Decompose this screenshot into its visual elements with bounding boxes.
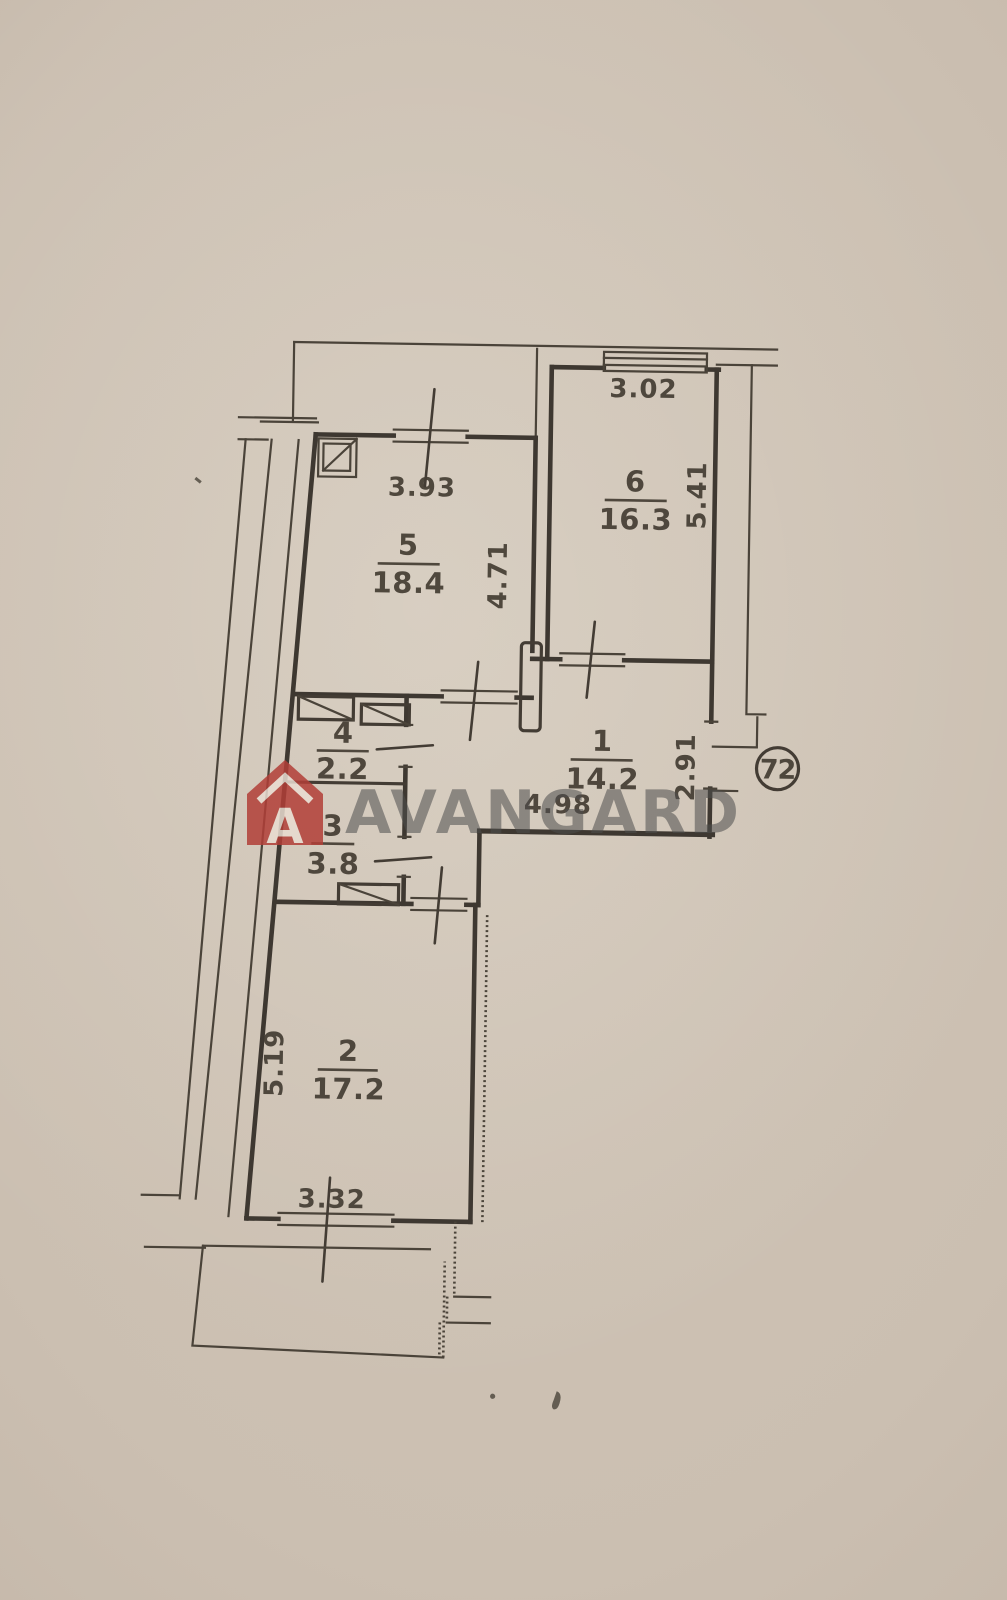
door-leaf-block — [520, 643, 541, 731]
room-3-number: 3 — [322, 809, 343, 843]
dimension-room-2-width: 3.32 — [297, 1184, 366, 1215]
corner-duct-room-5 — [318, 438, 357, 477]
room-5-number: 5 — [398, 528, 419, 562]
door-room-5 — [442, 690, 517, 703]
floor-plan-photo: 6 16.3 5 18.4 4 2.2 3 3.8 1 — [0, 0, 1007, 1600]
watermark-text: AVANGARD — [345, 778, 742, 848]
balcony-top-outline — [261, 342, 537, 438]
room-5-area: 18.4 — [371, 565, 445, 600]
window-room-6 — [604, 352, 707, 373]
room-4-label: 4 2.2 — [316, 715, 370, 786]
plan-lines: 6 16.3 5 18.4 4 2.2 3 3.8 1 — [138, 340, 805, 1413]
room-6-label: 6 16.3 — [598, 464, 673, 537]
room-3-area: 3.8 — [306, 846, 359, 881]
dimension-room-2-depth: 5.19 — [259, 1029, 290, 1098]
apartment-number-badge: 72 — [756, 747, 799, 790]
floor-plan-drawing: 6 16.3 5 18.4 4 2.2 3 3.8 1 — [0, 0, 1007, 1600]
room-1-number: 1 — [592, 724, 613, 758]
balcony-window-room-2 — [278, 1213, 393, 1227]
dimension-room-5-depth: 4.71 — [483, 541, 514, 610]
room-5-label: 5 18.4 — [371, 527, 446, 600]
dimension-room-6-depth: 5.41 — [682, 461, 713, 530]
dimension-room-5-width: 3.93 — [388, 473, 457, 504]
balcony-bottom-outline — [192, 911, 496, 1359]
dimension-room-6-width: 3.02 — [609, 374, 678, 405]
avangard-house-logo-icon: A — [247, 760, 323, 855]
watermark-logo-letter: A — [266, 799, 303, 855]
room-6-area: 16.3 — [598, 502, 672, 537]
room-4-number: 4 — [333, 716, 354, 750]
room-2-area: 17.2 — [311, 1071, 385, 1106]
room-6-number: 6 — [625, 464, 646, 498]
photo-specks — [180, 477, 575, 1410]
room-2-number: 2 — [338, 1034, 359, 1068]
apartment-number: 72 — [759, 754, 795, 786]
room-2-label: 2 17.2 — [311, 1033, 386, 1106]
